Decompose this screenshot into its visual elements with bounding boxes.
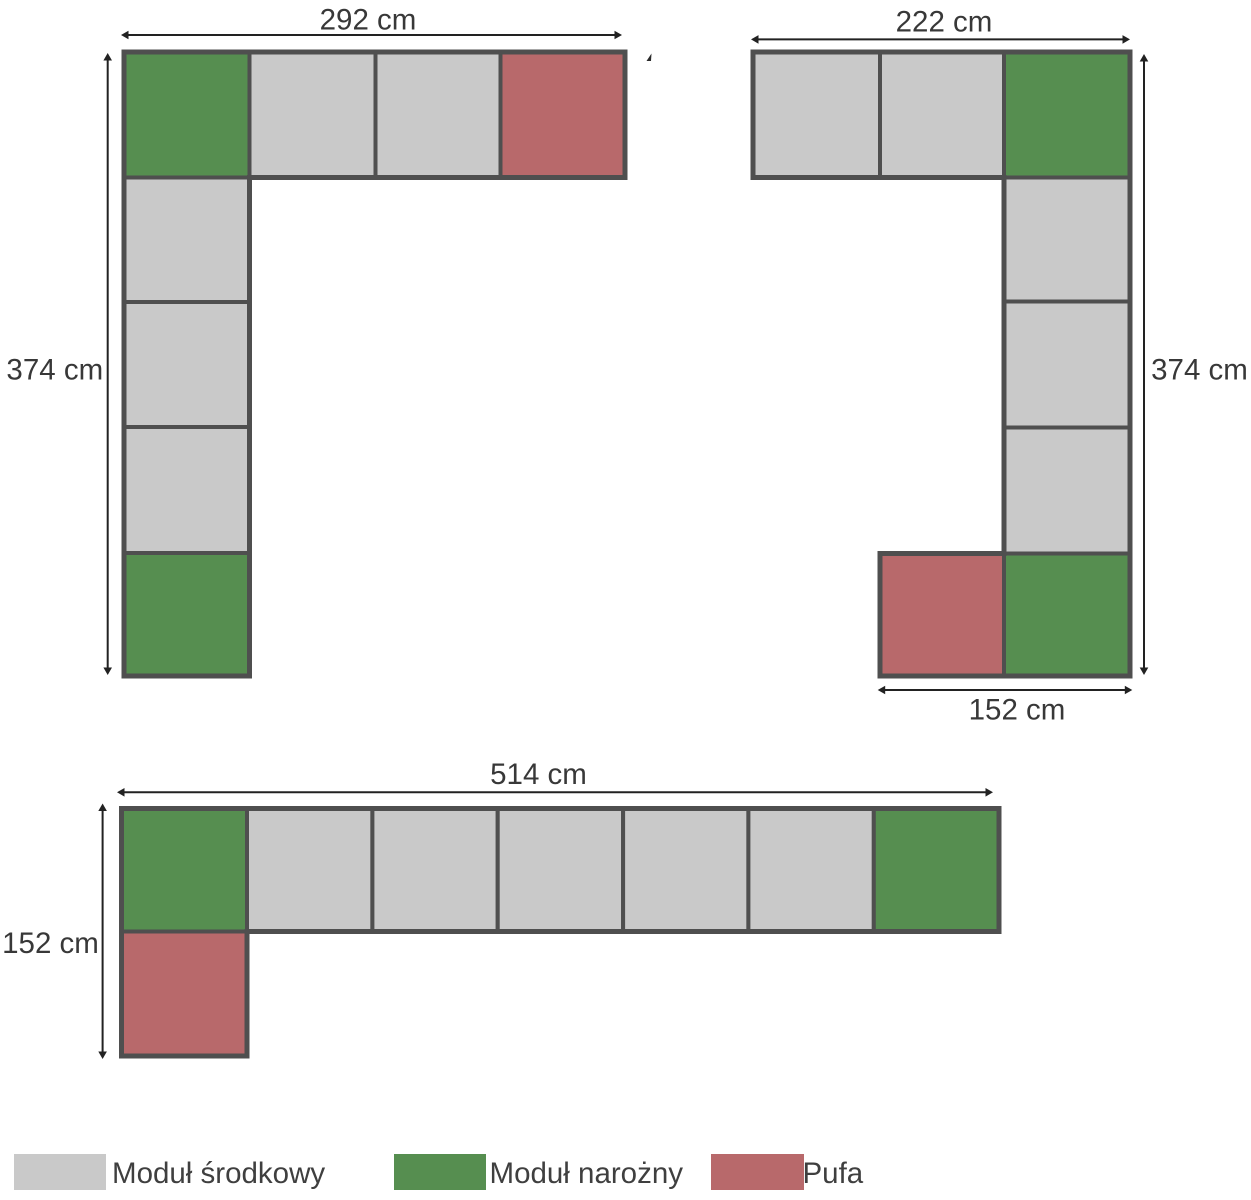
svg-text:Moduł narożny: Moduł narożny bbox=[490, 1157, 684, 1190]
svg-text:152 cm: 152 cm bbox=[969, 694, 1066, 727]
svg-text:152 cm: 152 cm bbox=[2, 927, 99, 960]
svg-text:514 cm: 514 cm bbox=[490, 758, 587, 791]
svg-text:374 cm: 374 cm bbox=[6, 354, 103, 387]
svg-text:Pufa: Pufa bbox=[803, 1157, 864, 1190]
svg-text:Moduł środkowy: Moduł środkowy bbox=[112, 1157, 325, 1190]
svg-text:222 cm: 222 cm bbox=[896, 6, 993, 39]
svg-text:374 cm: 374 cm bbox=[1151, 354, 1248, 387]
svg-text:292 cm: 292 cm bbox=[320, 4, 417, 37]
